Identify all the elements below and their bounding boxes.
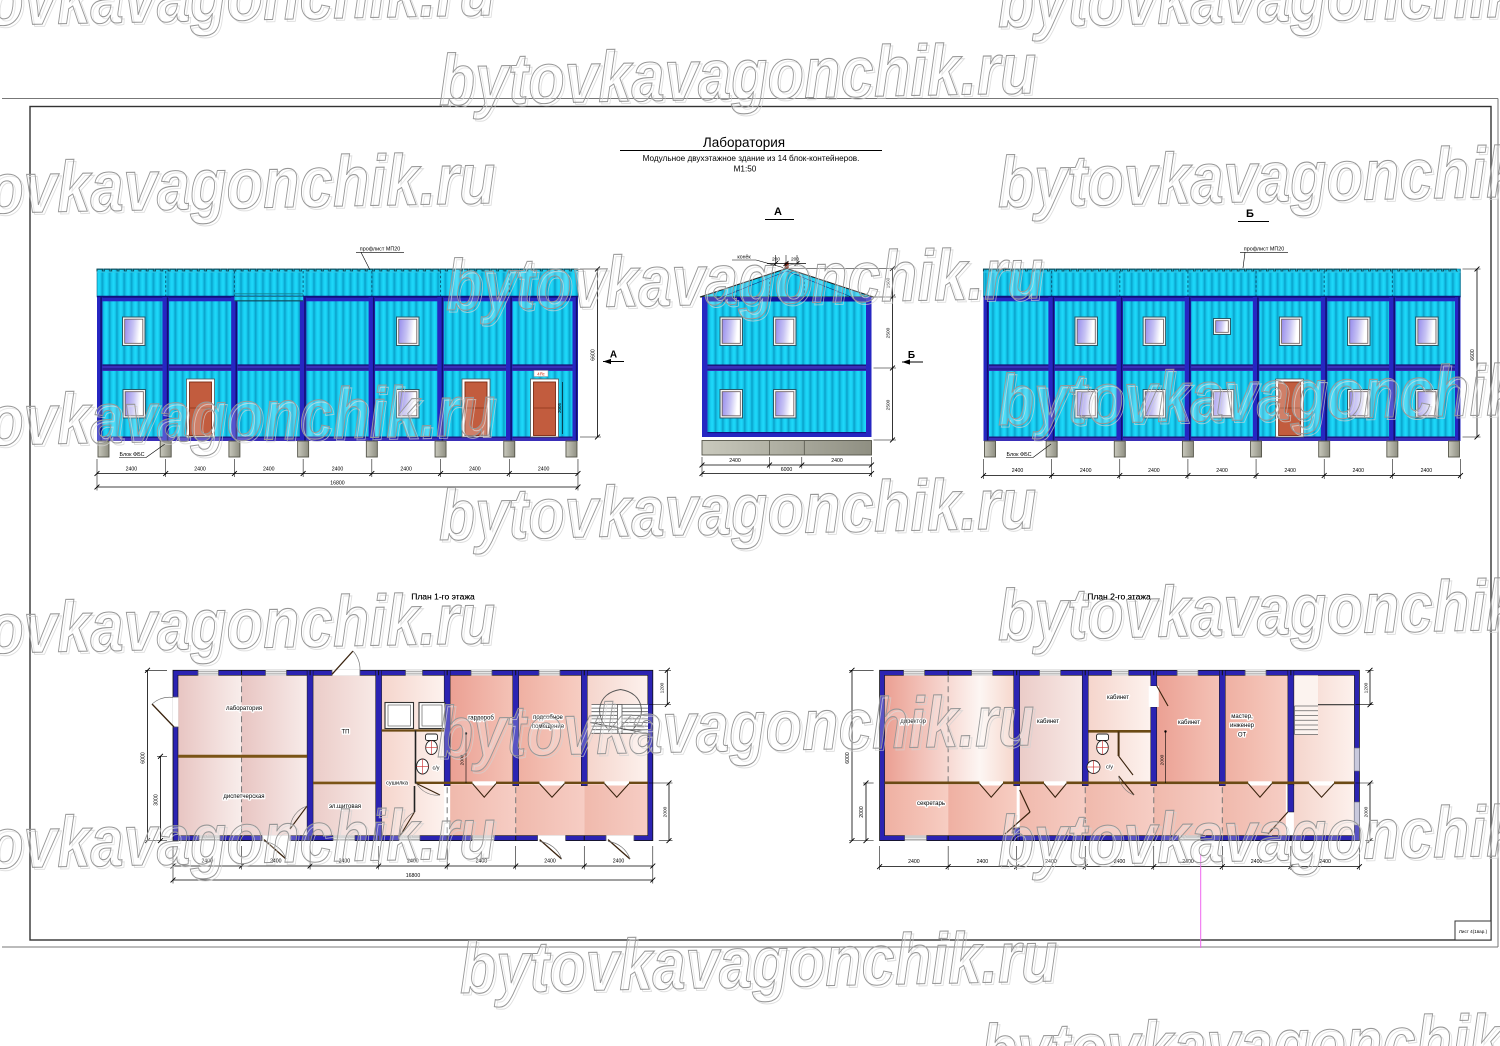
svg-text:2400: 2400 [469,467,481,473]
svg-text:А: А [774,206,782,218]
svg-text:2400: 2400 [908,859,920,865]
svg-text:кабинет: кабинет [1178,720,1200,726]
svg-text:Лаборатория: Лаборатория [703,135,785,150]
svg-text:bytovkavagonchik.ru: bytovkavagonchik.ru [445,234,1044,326]
svg-text:6000: 6000 [141,752,147,764]
svg-text:2400: 2400 [1352,468,1364,474]
svg-text:2400: 2400 [538,467,550,473]
svg-text:2000: 2000 [1160,754,1166,765]
svg-text:2400: 2400 [1216,468,1228,474]
svg-text:2400: 2400 [977,859,989,865]
svg-text:кабинет: кабинет [1037,719,1059,725]
svg-text:Блок ФБС: Блок ФБС [1006,452,1031,458]
svg-text:bytovkavagonchik.ru: bytovkavagonchik.ru [0,371,496,463]
svg-text:М1:50: М1:50 [734,165,757,174]
svg-text:bytovkavagonchik.ru: bytovkavagonchik.ru [0,794,496,886]
svg-text:bytovkavagonchik.ru: bytovkavagonchik.ru [459,917,1058,1009]
svg-text:2400: 2400 [263,467,275,473]
svg-text:bytovkavagonchik.ru: bytovkavagonchik.ru [997,349,1500,441]
svg-text:2400: 2400 [126,467,138,473]
svg-text:профлист МП20: профлист МП20 [360,247,400,253]
svg-text:16800: 16800 [330,481,345,487]
svg-text:2005: 2005 [557,402,562,413]
svg-text:2500: 2500 [886,399,892,410]
svg-text:2400: 2400 [1080,468,1092,474]
svg-text:2400: 2400 [1148,468,1160,474]
svg-text:2400: 2400 [831,458,843,464]
svg-text:профлист МП20: профлист МП20 [1244,247,1284,253]
svg-text:Б: Б [908,350,915,361]
svg-text:секретарь: секретарь [917,801,945,807]
svg-text:2400: 2400 [1284,468,1296,474]
svg-text:мастер,: мастер, [1231,714,1253,720]
svg-text:План 1-го этажа: План 1-го этажа [411,592,475,602]
svg-text:2400: 2400 [332,467,344,473]
svg-text:ОТ: ОТ [1238,733,1247,739]
svg-text:2400: 2400 [1421,468,1433,474]
svg-text:bytovkavagonchik.ru: bytovkavagonchik.ru [438,29,1037,121]
svg-text:кабинет: кабинет [1107,695,1129,701]
svg-text:2000: 2000 [859,806,865,818]
svg-text:лаборатория: лаборатория [226,706,262,712]
svg-text:2500: 2500 [886,327,892,338]
svg-text:с/у: с/у [1106,765,1113,771]
svg-text:Лист 4(1вар.): Лист 4(1вар.) [1459,929,1488,934]
svg-text:сушилка: сушилка [386,781,409,787]
svg-text:ТП: ТП [342,730,350,736]
svg-text:А: А [610,350,617,361]
svg-text:План 2-го этажа: План 2-го этажа [1087,592,1151,602]
svg-text:2400: 2400 [613,859,625,865]
svg-text:Модульное двухэтажное здание и: Модульное двухэтажное здание из 14 блок-… [643,154,860,163]
svg-text:bytovkavagonchik.ru: bytovkavagonchik.ru [997,131,1500,223]
svg-text:инженер: инженер [1230,723,1255,729]
svg-text:1200: 1200 [1364,682,1370,693]
svg-text:bytovkavagonchik.ru: bytovkavagonchik.ru [0,139,496,231]
svg-text:bytovkavagonchik.ru: bytovkavagonchik.ru [436,681,1035,773]
svg-text:2400: 2400 [544,859,556,865]
svg-text:2000: 2000 [663,806,669,817]
svg-text:2400: 2400 [400,467,412,473]
svg-text:bytovkavagonchik.ru: bytovkavagonchik.ru [438,464,1037,556]
svg-text:bytovkavagonchik.ru: bytovkavagonchik.ru [997,564,1500,656]
svg-text:bytovkavagonchik.ru: bytovkavagonchik.ru [997,790,1500,882]
svg-text:2400: 2400 [194,467,206,473]
svg-text:4Яс: 4Яс [537,372,544,377]
svg-text:2400: 2400 [729,458,741,464]
svg-text:6600: 6600 [591,349,597,361]
